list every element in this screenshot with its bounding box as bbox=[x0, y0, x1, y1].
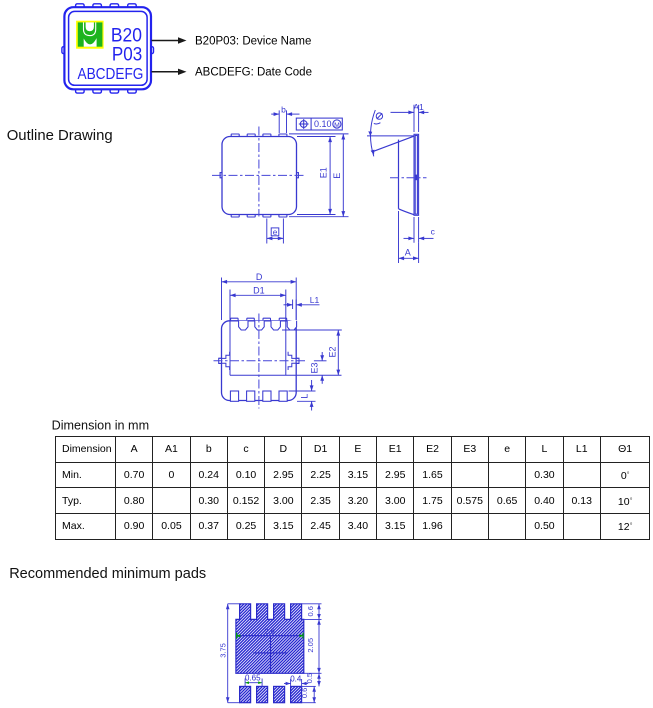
svg-text:c: c bbox=[431, 226, 436, 236]
svg-text:3.75: 3.75 bbox=[218, 643, 227, 658]
svg-text:E1: E1 bbox=[319, 167, 329, 178]
svg-text:M: M bbox=[334, 122, 340, 129]
svg-text:L: L bbox=[299, 394, 309, 399]
svg-text:E3: E3 bbox=[309, 362, 319, 373]
svg-text:P03: P03 bbox=[112, 45, 142, 66]
svg-text:Outline Drawing: Outline Drawing bbox=[7, 127, 113, 144]
svg-text:D: D bbox=[256, 272, 263, 282]
svg-text:0.6: 0.6 bbox=[306, 606, 315, 616]
svg-text:A: A bbox=[405, 247, 411, 257]
svg-text:B20: B20 bbox=[111, 25, 142, 46]
svg-text:2.05: 2.05 bbox=[306, 638, 315, 653]
svg-text:0.10: 0.10 bbox=[314, 119, 332, 129]
svg-text:Recommended minimum pads: Recommended minimum pads bbox=[9, 565, 206, 582]
svg-text:ABCDEFG: Date Code: ABCDEFG: Date Code bbox=[195, 67, 312, 79]
svg-text:0.6: 0.6 bbox=[300, 688, 309, 698]
svg-text:0.4: 0.4 bbox=[290, 674, 302, 683]
svg-text:0.5: 0.5 bbox=[305, 673, 314, 683]
svg-text:E: E bbox=[332, 173, 342, 179]
svg-text:D1: D1 bbox=[253, 286, 265, 296]
svg-text:A1: A1 bbox=[413, 102, 424, 112]
svg-text:e: e bbox=[273, 228, 278, 237]
svg-text:b: b bbox=[281, 104, 286, 114]
svg-text:ABCDEFG: ABCDEFG bbox=[78, 66, 144, 83]
svg-text:E2: E2 bbox=[327, 346, 337, 357]
svg-text:Dimension in mm: Dimension in mm bbox=[52, 418, 150, 432]
svg-text:2.6: 2.6 bbox=[264, 627, 274, 636]
svg-text:B20P03: Device Name: B20P03: Device Name bbox=[195, 35, 311, 47]
svg-text:0.65: 0.65 bbox=[245, 674, 261, 683]
svg-text:L1: L1 bbox=[310, 295, 320, 305]
